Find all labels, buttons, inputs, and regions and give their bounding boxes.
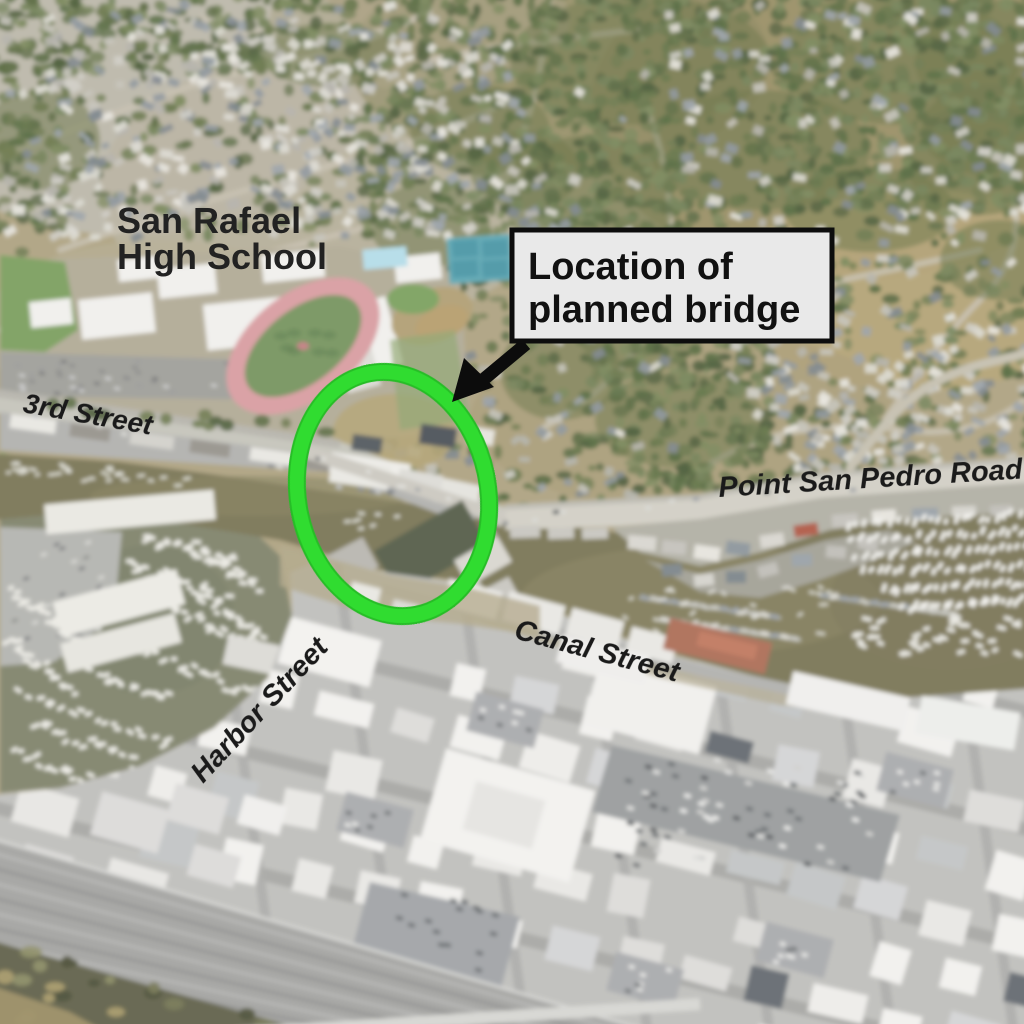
svg-text:Location of: Location of	[528, 246, 733, 288]
svg-text:planned bridge: planned bridge	[528, 289, 800, 331]
svg-text:High School: High School	[117, 236, 327, 277]
svg-text:San Rafael: San Rafael	[117, 200, 301, 241]
